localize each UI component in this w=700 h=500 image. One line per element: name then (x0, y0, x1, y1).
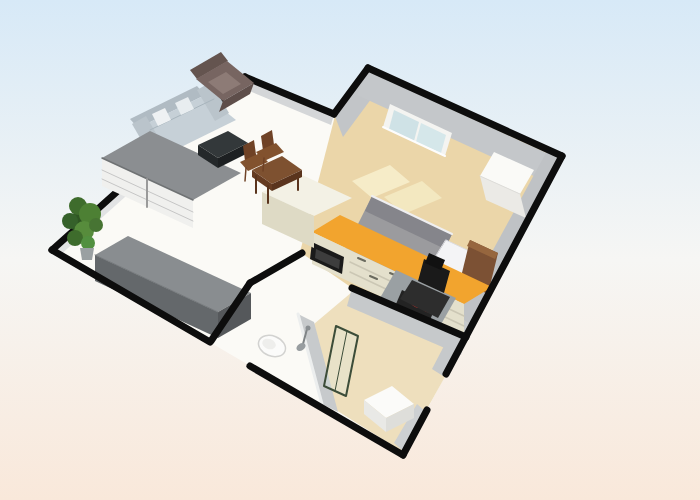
dining-chair-leg (245, 168, 246, 181)
potted-plant-foliage (89, 218, 103, 232)
plant-pot (80, 248, 94, 260)
floor-plan-viewport (0, 0, 700, 500)
shower-valve (306, 326, 311, 331)
floor-plan-canvas (0, 0, 700, 500)
potted-plant-foliage (67, 230, 83, 246)
potted-plant-foliage (81, 236, 95, 250)
dining-chair-leg (263, 158, 264, 171)
